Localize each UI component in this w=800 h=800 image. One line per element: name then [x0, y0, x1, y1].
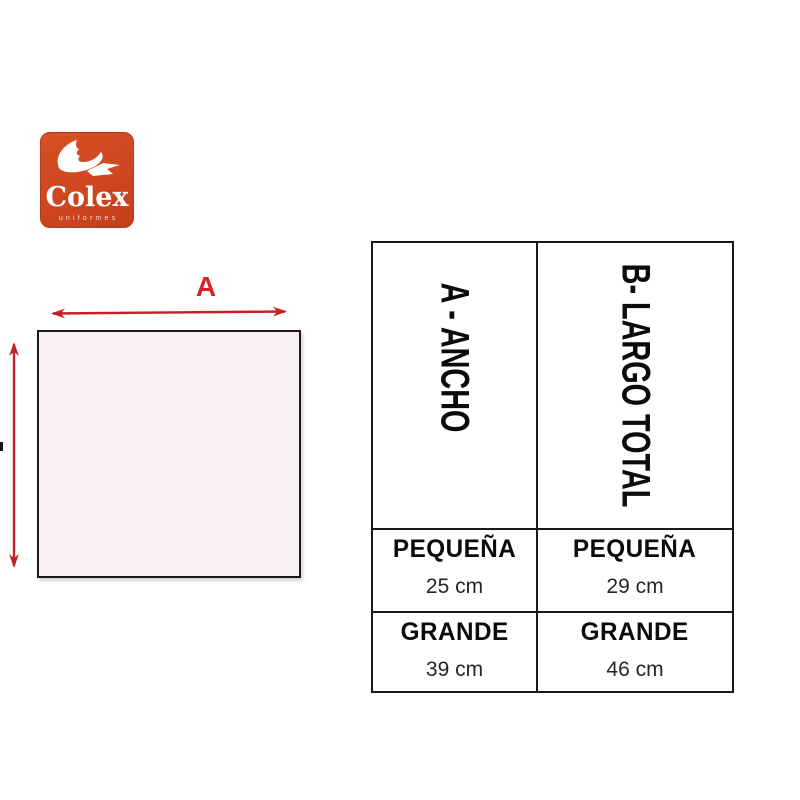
size-value: 39 cm [426, 658, 483, 682]
brand-name: Colex [41, 183, 133, 213]
table-cell-ancho-pequena: PEQUEÑA 25 cm [373, 528, 536, 611]
cropped-label-fragment [0, 442, 3, 451]
width-dimension-label: A [186, 271, 226, 303]
garment-outline [37, 330, 301, 578]
size-name: GRANDE [400, 618, 508, 647]
size-table-header-largo: B- LARGO TOTAL [536, 243, 732, 528]
size-value: 29 cm [606, 575, 663, 599]
size-name: PEQUEÑA [393, 535, 516, 564]
width-arrow [53, 312, 285, 314]
brand-logo: Colex uniformes [40, 132, 134, 228]
brand-tagline: uniformes [41, 215, 133, 222]
size-name: GRANDE [581, 618, 689, 647]
table-cell-largo-grande: GRANDE 46 cm [536, 611, 732, 691]
size-value: 46 cm [606, 658, 663, 682]
table-cell-largo-pequena: PEQUEÑA 29 cm [536, 528, 732, 611]
size-value: 25 cm [426, 575, 483, 599]
header-ancho-label: A - ANCHO [432, 283, 477, 433]
dove-wing-icon [50, 137, 126, 185]
size-name: PEQUEÑA [573, 535, 696, 564]
table-cell-ancho-grande: GRANDE 39 cm [373, 611, 536, 691]
header-largo-label: B- LARGO TOTAL [613, 264, 658, 508]
size-guide-page: Colex uniformes A A - ANCHO B- LARGO TOT… [0, 0, 800, 800]
size-table-header-ancho: A - ANCHO [373, 243, 536, 528]
size-table: A - ANCHO B- LARGO TOTAL PEQUEÑA 25 cm P… [371, 241, 734, 693]
